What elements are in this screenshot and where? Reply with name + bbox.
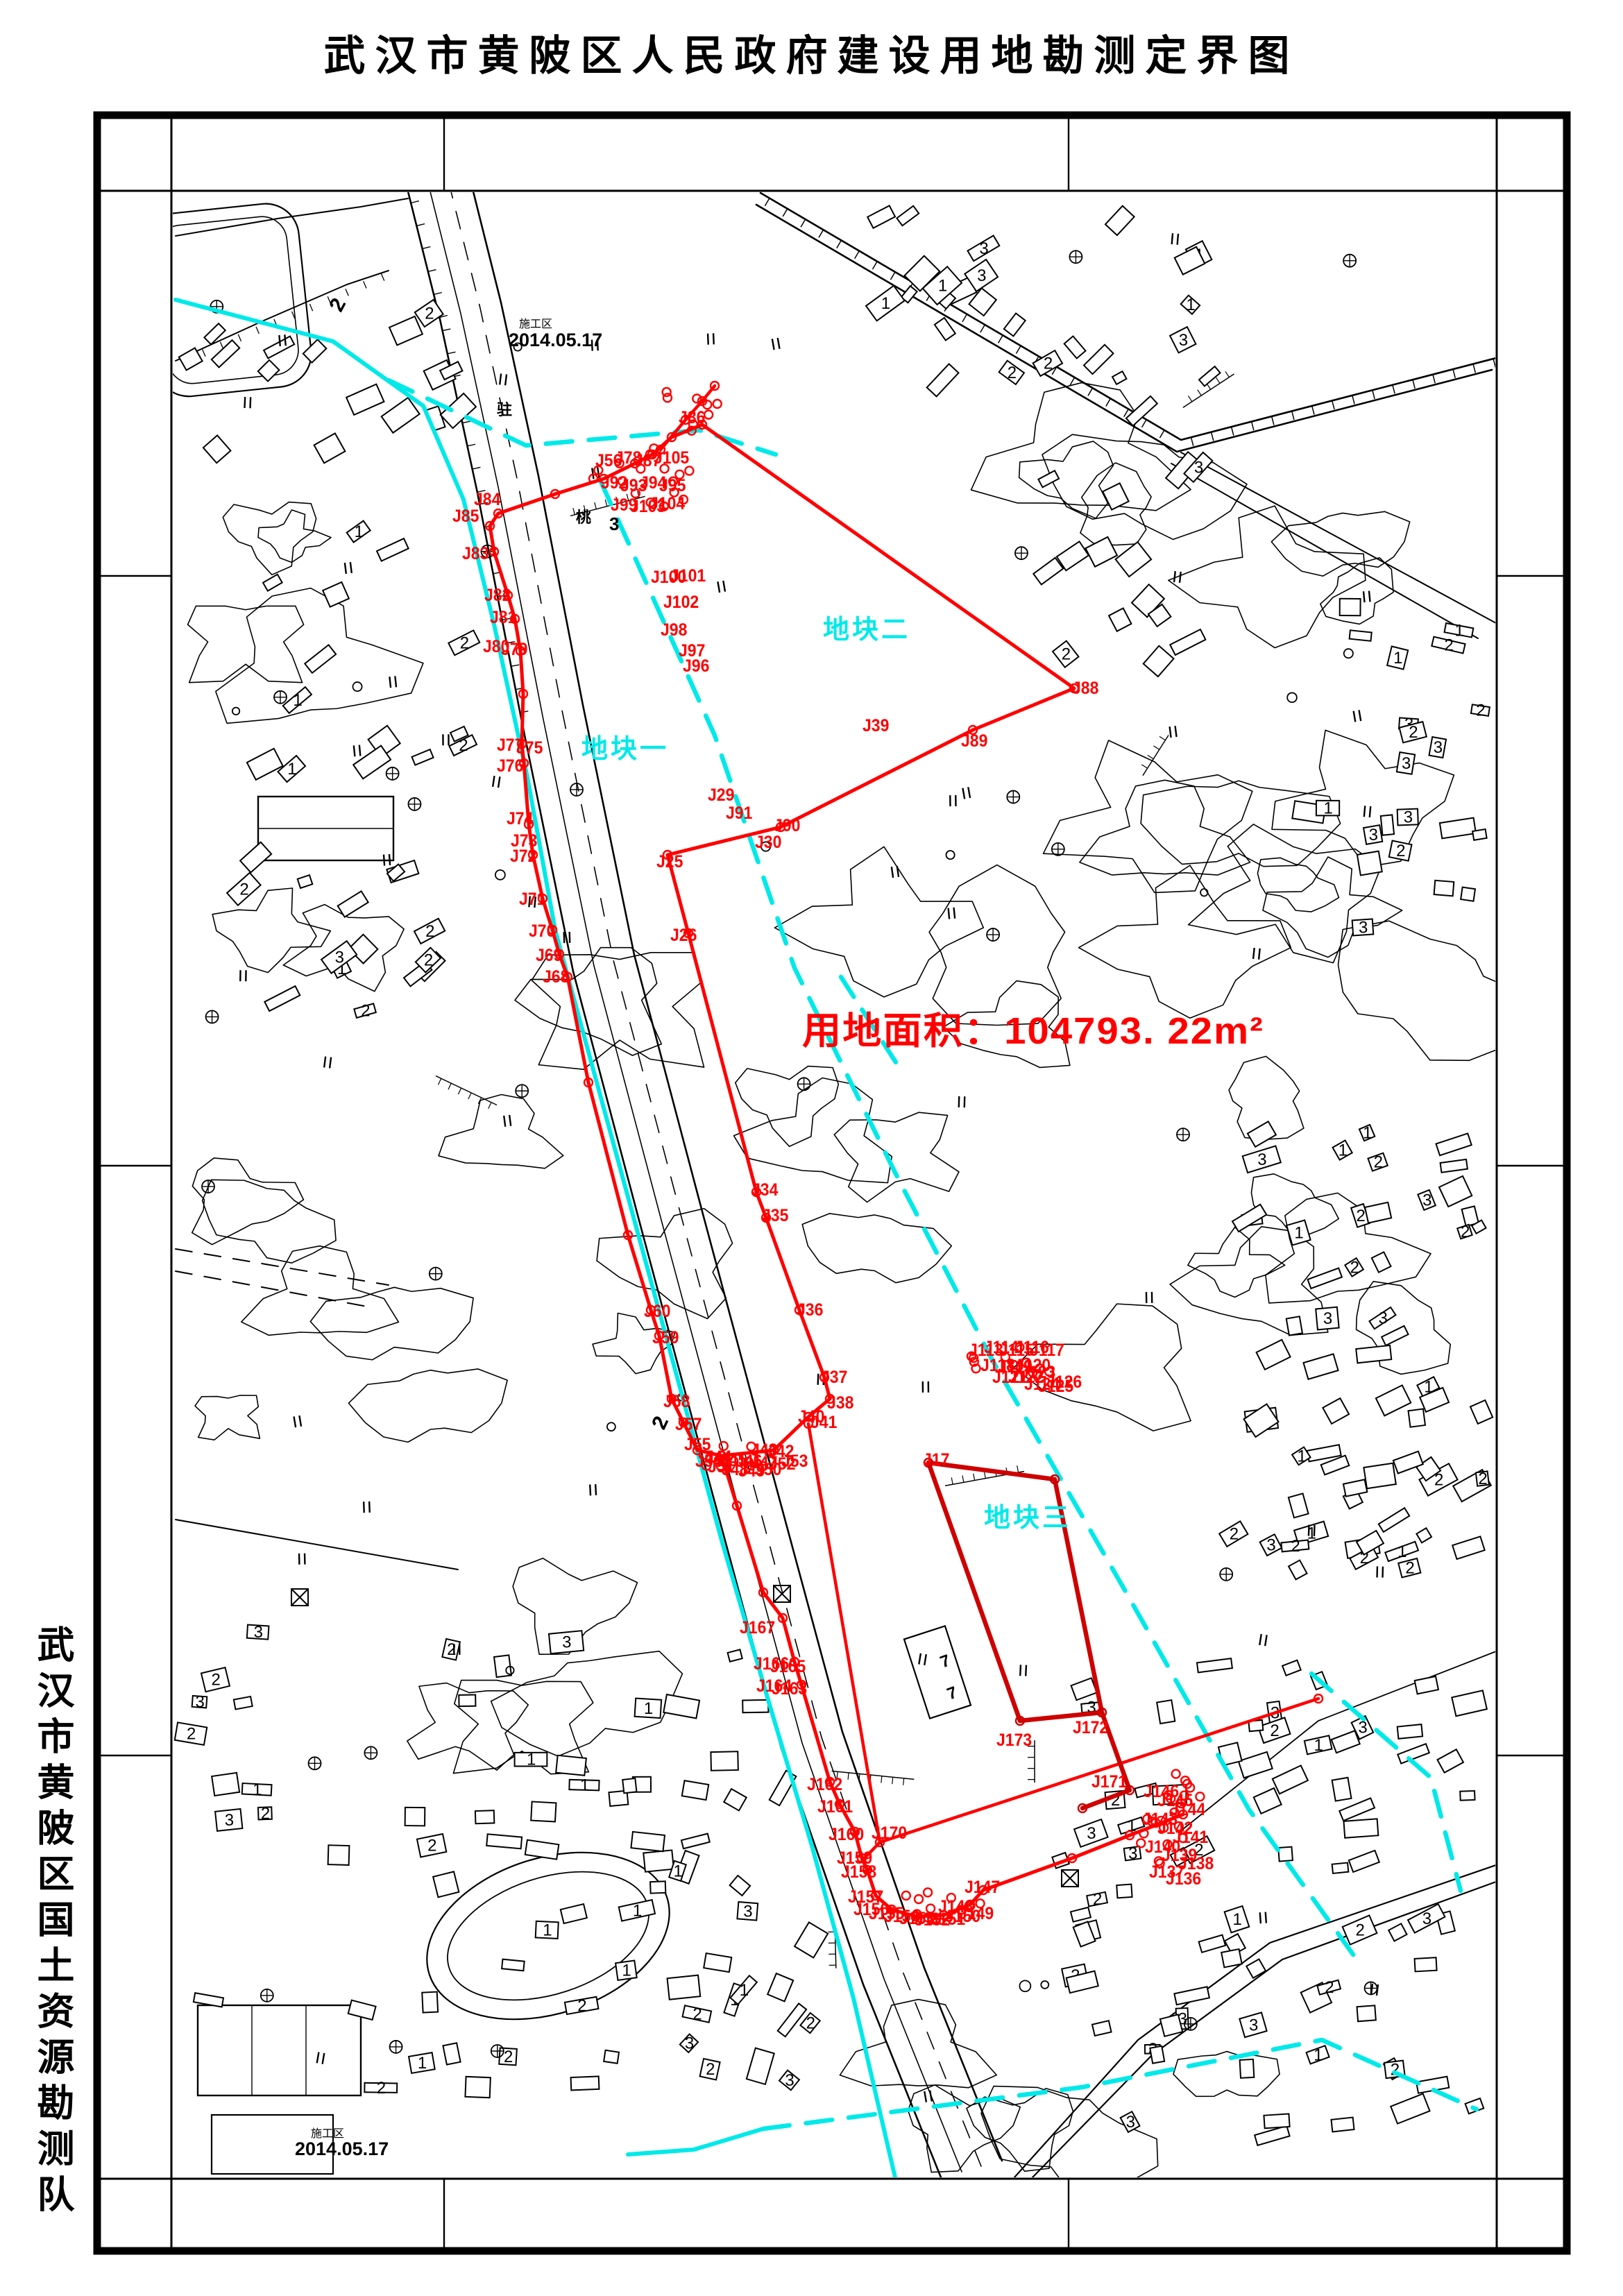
svg-text:3: 3: [1359, 918, 1368, 937]
survey-point-label: J38: [827, 1395, 853, 1412]
svg-text:3: 3: [1257, 1150, 1266, 1169]
svg-text:1: 1: [622, 1962, 631, 1980]
svg-text:3: 3: [225, 1811, 234, 1830]
svg-text:2: 2: [425, 305, 434, 323]
svg-text:2: 2: [706, 2060, 715, 2079]
svg-text:1: 1: [355, 522, 364, 541]
survey-point-label: J35: [762, 1207, 788, 1225]
survey-point-label: J162: [807, 1776, 842, 1794]
survey-point-label: J81: [490, 609, 516, 627]
svg-text:1: 1: [1324, 799, 1333, 818]
svg-text:1: 1: [293, 691, 302, 710]
survey-point-label: J26: [670, 927, 697, 944]
svg-text:1: 1: [543, 1921, 552, 1939]
svg-text:2: 2: [1374, 1153, 1383, 1172]
svg-text:2: 2: [377, 2079, 386, 2098]
survey-point-label: J76: [497, 758, 523, 775]
survey-point-label: J39: [863, 717, 889, 735]
survey-point-label: J126: [1046, 1374, 1082, 1391]
svg-text:2: 2: [1356, 1921, 1365, 1939]
survey-point-label: J37: [821, 1369, 847, 1386]
map-annotation: 2014.05.17: [295, 2140, 389, 2159]
svg-text:3: 3: [977, 266, 986, 285]
svg-text:2: 2: [1357, 1207, 1366, 1225]
svg-text:2: 2: [261, 1804, 270, 1823]
svg-text:1: 1: [1363, 1124, 1372, 1143]
survey-point-label: J54: [695, 1453, 722, 1470]
svg-text:3: 3: [1323, 1309, 1332, 1328]
svg-text:2: 2: [1444, 636, 1453, 655]
svg-text:3: 3: [1179, 331, 1188, 350]
svg-text:2: 2: [1325, 1978, 1334, 1997]
svg-text:2: 2: [1008, 364, 1017, 382]
svg-text:3: 3: [685, 2034, 694, 2053]
survey-point-label: J68: [543, 969, 569, 986]
svg-text:2: 2: [427, 1837, 436, 1855]
svg-text:2: 2: [504, 2048, 513, 2066]
map-annotation: 桃: [576, 510, 591, 525]
svg-text:3: 3: [785, 2071, 794, 2090]
survey-point-label: J91: [726, 805, 752, 822]
svg-text:2: 2: [1405, 1559, 1414, 1578]
svg-text:3: 3: [1249, 2016, 1258, 2034]
plot-name-label: 地块三: [984, 1496, 1071, 1534]
water-pipeline-lines: [176, 300, 1477, 2177]
map-annotation: 2014.05.17: [509, 331, 602, 350]
svg-text:3: 3: [335, 948, 344, 967]
svg-text:3: 3: [254, 1623, 263, 1642]
svg-text:2: 2: [1230, 1525, 1239, 1544]
survey-point-label: J57: [675, 1416, 702, 1434]
svg-text:3: 3: [1434, 738, 1443, 757]
survey-point-label: J85: [452, 508, 479, 525]
svg-text:1: 1: [673, 1862, 682, 1880]
svg-text:2: 2: [1409, 723, 1418, 742]
svg-text:2: 2: [460, 633, 469, 652]
survey-point-label: J96: [683, 658, 709, 675]
topographic-linework: 2113122222121313122312332333223213221321…: [140, 175, 1538, 2195]
survey-point-label: J167: [740, 1619, 775, 1637]
land-area-label: 用地面积：104793. 22m²: [802, 1000, 1264, 1055]
svg-text:2: 2: [692, 2005, 702, 2023]
svg-text:1: 1: [580, 1776, 589, 1795]
survey-point-label: J163: [772, 1681, 807, 1698]
survey-point-label: J89: [961, 733, 987, 750]
svg-text:2: 2: [424, 951, 433, 970]
survey-point-label: J17: [923, 1452, 949, 1469]
svg-text:3: 3: [1369, 826, 1378, 844]
svg-text:2: 2: [1270, 1721, 1279, 1740]
plot-name-label: 地块一: [581, 727, 669, 765]
svg-text:3: 3: [1422, 1910, 1431, 1928]
svg-text:3: 3: [1422, 1191, 1431, 1209]
survey-point-label: J60: [644, 1303, 670, 1320]
svg-text:3: 3: [743, 1902, 752, 1921]
svg-text:1: 1: [938, 277, 947, 296]
map-annotation: 驻: [497, 402, 512, 418]
survey-point-label: J105: [654, 450, 689, 467]
svg-text:1: 1: [1294, 1224, 1303, 1243]
svg-text:1: 1: [740, 1981, 749, 2000]
svg-text:2: 2: [459, 736, 468, 755]
survey-point-label: J82: [484, 587, 511, 604]
svg-text:1: 1: [253, 1780, 262, 1799]
svg-text:1: 1: [1314, 2046, 1323, 2064]
svg-text:1: 1: [1186, 296, 1195, 314]
svg-text:2: 2: [239, 880, 248, 899]
survey-point-label: J69: [536, 947, 562, 964]
survey-point-label: J160: [829, 1826, 864, 1844]
svg-text:1: 1: [633, 1901, 642, 1920]
svg-text:2: 2: [1350, 1258, 1359, 1277]
survey-point-label: J29: [708, 787, 734, 804]
survey-point-label: J72: [510, 848, 536, 865]
survey-point-label: J74: [507, 810, 533, 828]
survey-point-label: J102: [663, 594, 699, 611]
svg-text:2: 2: [1062, 645, 1071, 664]
survey-point-label: J86: [679, 409, 705, 427]
survey-point-label: J161: [817, 1798, 853, 1816]
svg-text:2: 2: [1396, 842, 1405, 860]
survey-point-label: J58: [663, 1393, 690, 1411]
survey-point-label: J25: [656, 853, 683, 871]
svg-text:1: 1: [1297, 1447, 1306, 1465]
survey-point-label: J165: [770, 1658, 806, 1676]
survey-point-label: J83: [462, 545, 488, 563]
svg-text:3: 3: [1358, 1719, 1367, 1737]
map-annotation: 3: [609, 515, 619, 533]
map-canvas: 2113122222121313122312332333223213221321…: [0, 0, 1623, 2296]
svg-text:3: 3: [1126, 2113, 1135, 2132]
survey-point-label: J59: [652, 1329, 679, 1347]
svg-text:2: 2: [1478, 1470, 1487, 1488]
svg-text:2: 2: [1476, 701, 1485, 720]
survey-point-label: J104: [649, 495, 685, 513]
survey-point-label: J136: [1166, 1871, 1201, 1888]
survey-point-label: J88: [1072, 680, 1098, 697]
survey-point-label: J41: [810, 1414, 837, 1431]
svg-text:3: 3: [562, 1633, 571, 1652]
survey-point-label: J79: [501, 641, 527, 658]
survey-point-label: J171: [1091, 1774, 1127, 1791]
survey-point-label: J170: [872, 1825, 907, 1842]
svg-text:1: 1: [1393, 649, 1402, 667]
svg-text:3: 3: [1404, 808, 1413, 827]
survey-point-label: J95: [659, 477, 686, 495]
svg-text:3: 3: [1266, 1536, 1275, 1555]
svg-text:3: 3: [1087, 1824, 1096, 1843]
survey-point-label: J75: [516, 740, 543, 757]
svg-text:3: 3: [1128, 1844, 1137, 1863]
svg-text:1: 1: [1232, 1910, 1241, 1929]
survey-point-label: J172: [1073, 1719, 1108, 1737]
svg-text:2: 2: [1461, 1223, 1470, 1241]
svg-text:2: 2: [211, 1671, 220, 1690]
svg-text:1: 1: [644, 1699, 653, 1718]
survey-point-label: J36: [797, 1302, 823, 1319]
survey-point-label: J70: [529, 923, 555, 940]
svg-text:1: 1: [527, 1751, 536, 1769]
svg-text:3: 3: [196, 1693, 205, 1712]
svg-text:1: 1: [418, 2054, 427, 2073]
survey-point-label: J98: [661, 622, 687, 639]
svg-text:3: 3: [1378, 1309, 1387, 1328]
svg-text:2: 2: [1093, 1890, 1102, 1909]
plot-name-label: 地块二: [823, 608, 910, 646]
svg-text:1: 1: [881, 294, 890, 313]
survey-point-label: J30: [755, 834, 781, 851]
survey-point-label: J101: [670, 568, 706, 585]
svg-text:2: 2: [425, 922, 434, 941]
svg-text:3: 3: [979, 239, 988, 258]
survey-point-label: J158: [841, 1864, 876, 1881]
survey-point-label: J71: [519, 891, 545, 908]
survey-point-label: J148: [938, 1898, 974, 1916]
svg-text:3: 3: [1402, 754, 1411, 773]
svg-text:2: 2: [1291, 1537, 1300, 1556]
svg-text:2: 2: [577, 1996, 586, 2015]
svg-text:1: 1: [1454, 621, 1463, 640]
svg-text:2: 2: [1044, 355, 1053, 373]
survey-point-label: J34: [751, 1182, 778, 1199]
svg-text:2: 2: [806, 2014, 815, 2033]
survey-map-sheet: 武汉市黄陂区人民政府建设用地勘测定界图 武汉市黄陂区国土资源勘测队 211312…: [0, 0, 1623, 2296]
survey-point-label: J53: [781, 1453, 808, 1470]
svg-text:2: 2: [187, 1725, 196, 1744]
svg-text:1: 1: [287, 760, 296, 779]
survey-point-label: J147: [965, 1879, 1000, 1896]
svg-text:1: 1: [1339, 1141, 1348, 1160]
map-annotation: 施工区: [519, 319, 552, 330]
svg-text:1: 1: [1314, 1736, 1323, 1755]
svg-text:3: 3: [1194, 458, 1203, 477]
svg-text:2: 2: [361, 1002, 370, 1021]
survey-point-label: J173: [996, 1732, 1032, 1749]
